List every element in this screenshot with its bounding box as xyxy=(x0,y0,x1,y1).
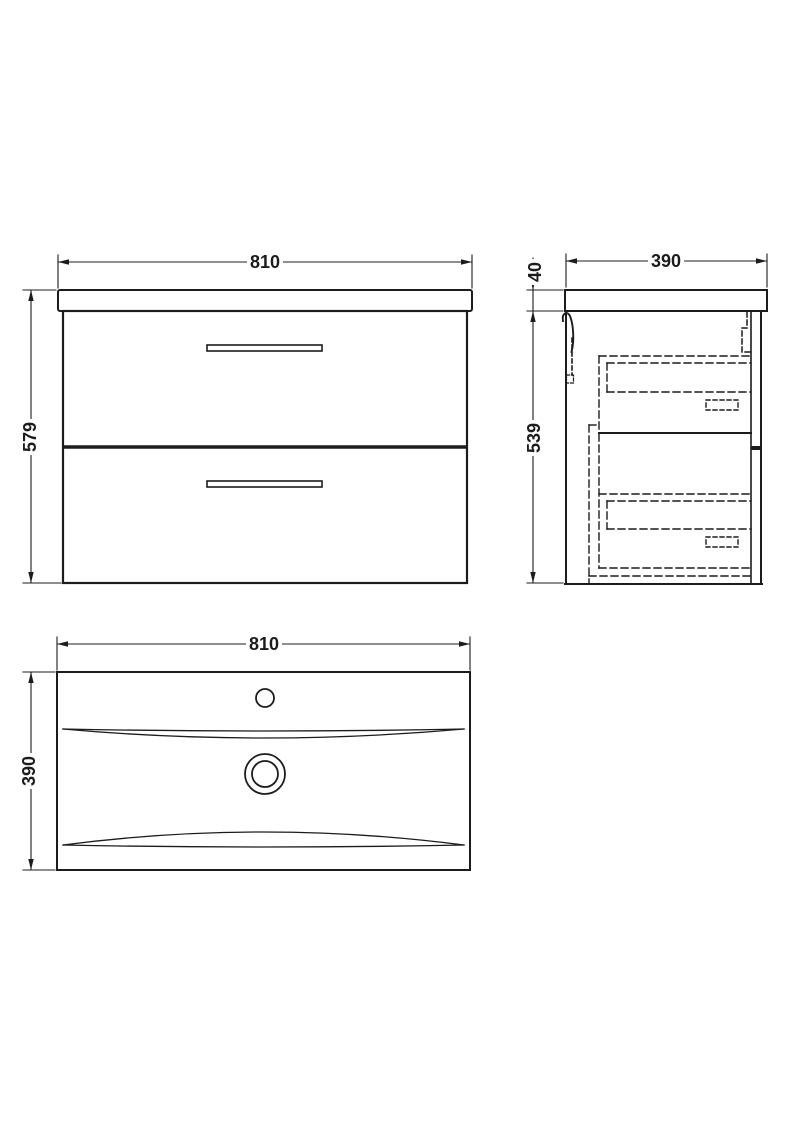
drawer-runner-hidden xyxy=(706,537,738,547)
front-worktop xyxy=(58,290,472,311)
front-height-dimension-label: 579 xyxy=(20,419,40,455)
wall-bracket-hidden xyxy=(742,312,750,352)
arrowhead xyxy=(461,259,472,264)
arrowhead xyxy=(530,572,535,583)
side-depth-dimension-label: 390 xyxy=(648,251,684,271)
technical-drawing-canvas xyxy=(0,0,800,1132)
side-view xyxy=(563,290,767,584)
basin-back-edge-curve xyxy=(63,729,464,731)
arrowhead xyxy=(28,672,33,683)
arrowhead xyxy=(57,641,68,646)
arrowhead xyxy=(530,311,535,322)
arrowhead xyxy=(28,290,33,301)
arrowhead xyxy=(459,641,470,646)
plan-width-dimension-label: 810 xyxy=(246,634,282,654)
arrowhead xyxy=(28,572,33,583)
side-back-panel-joint xyxy=(751,446,761,450)
drawing-sheet: 810 579 390 40 539 810 390 xyxy=(0,0,800,1132)
arrowhead xyxy=(566,258,577,263)
side-worktop xyxy=(565,290,767,311)
arrowhead xyxy=(28,859,33,870)
side-height-dimension-label: 539 xyxy=(524,420,544,456)
side-hidden-verticals xyxy=(589,425,599,584)
waste-drain-inner xyxy=(252,761,278,787)
front-view xyxy=(58,290,472,583)
side-worktop-thickness-label: 40 xyxy=(525,259,545,285)
tap-hole xyxy=(256,689,274,707)
basin-clip-hidden xyxy=(567,375,574,383)
basin-front-slope-curve xyxy=(63,832,464,845)
plan-view xyxy=(57,672,470,870)
plan-depth-dimension-label: 390 xyxy=(19,753,39,789)
lower-drawer-box-hidden xyxy=(589,494,751,576)
waste-drain-outer xyxy=(245,754,285,794)
front-drawer-handle-top xyxy=(207,345,322,351)
upper-drawer-box-hidden xyxy=(599,356,751,432)
side-dimensions xyxy=(527,254,767,583)
arrowhead xyxy=(756,258,767,263)
arrowhead xyxy=(58,259,69,264)
front-dimensions xyxy=(23,255,472,583)
front-width-dimension-label: 810 xyxy=(247,252,283,272)
basin-front-edge-curve xyxy=(63,845,464,847)
front-drawer-handle-bottom xyxy=(207,481,322,487)
drawer-runner-hidden xyxy=(706,400,738,410)
basin-outline xyxy=(57,672,470,870)
